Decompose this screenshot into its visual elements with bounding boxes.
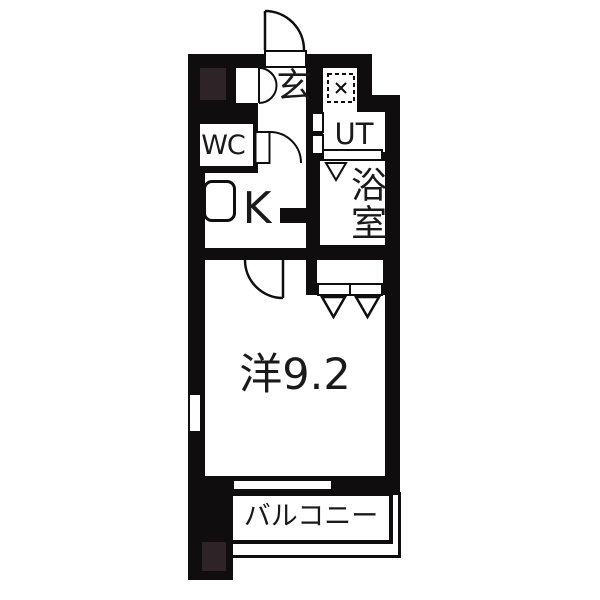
room-label-ut: UT	[328, 118, 380, 150]
room-label-balcony: バルコニー	[226, 501, 396, 533]
closet-bifold-triangle-left-icon	[322, 297, 345, 317]
entrance-door-swing-icon	[265, 11, 304, 50]
room-label-main-room: 洋9.2	[215, 352, 375, 398]
room-label-kitchen: K	[238, 186, 276, 232]
wc-door-swing-icon	[256, 132, 302, 163]
washing-machine-space-icon	[328, 74, 354, 102]
floor-plan: 玄 WC UT 浴室 K 洋9.2 バルコニー	[0, 0, 600, 600]
closet-bifold-triangle-right-icon	[356, 297, 379, 317]
room-label-wc: WC	[198, 130, 248, 162]
main-room-door-swing-icon	[245, 260, 283, 298]
room-label-entrance: 玄	[272, 67, 316, 107]
room-label-bathroom: 浴室	[339, 161, 391, 247]
